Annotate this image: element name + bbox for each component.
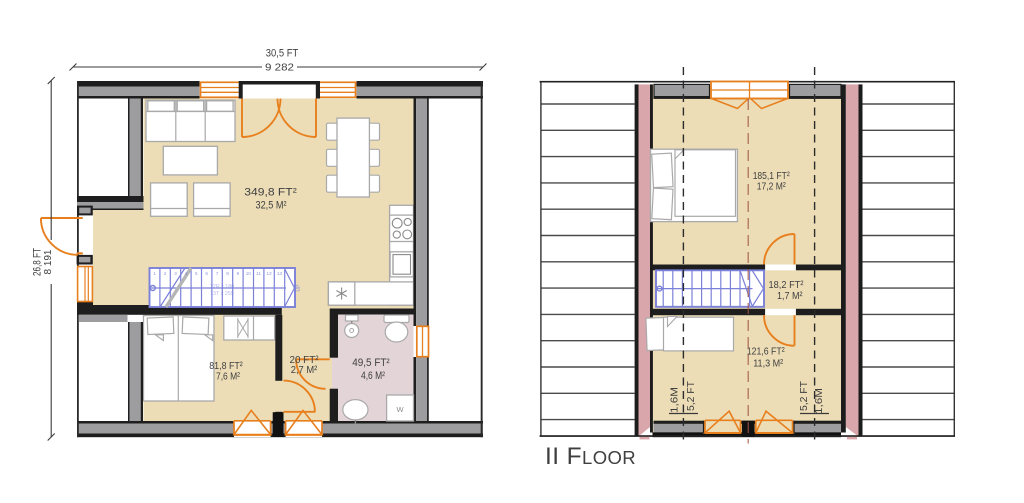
svg-text:32,5 M²: 32,5 M² bbox=[256, 200, 287, 212]
svg-text:26,8 FT: 26,8 FT bbox=[32, 248, 44, 276]
svg-text:13: 13 bbox=[277, 271, 283, 276]
svg-text:4: 4 bbox=[185, 271, 188, 276]
svg-text:5,2 FT: 5,2 FT bbox=[686, 381, 697, 411]
svg-text:11,3 M²: 11,3 M² bbox=[753, 359, 784, 370]
svg-text:UP: UP bbox=[296, 284, 302, 292]
svg-text:9 282: 9 282 bbox=[265, 63, 294, 74]
svg-text:10: 10 bbox=[246, 271, 252, 276]
svg-text:18,2 FT²: 18,2 FT² bbox=[769, 280, 805, 291]
svg-text:4,6 M²: 4,6 M² bbox=[361, 370, 385, 382]
svg-text:7: 7 bbox=[216, 271, 219, 276]
svg-text:17,2 M²: 17,2 M² bbox=[757, 182, 787, 193]
svg-text:12R x 180: 12R x 180 bbox=[210, 284, 235, 290]
svg-text:8 191: 8 191 bbox=[43, 249, 54, 274]
svg-text:2,7 M²: 2,7 M² bbox=[291, 365, 318, 376]
svg-text:12: 12 bbox=[267, 271, 273, 276]
svg-text:9: 9 bbox=[237, 271, 240, 276]
svg-text:1: 1 bbox=[153, 271, 156, 276]
svg-text:1,7 M²: 1,7 M² bbox=[777, 291, 803, 302]
svg-text:II FLOOR: II FLOOR bbox=[545, 443, 636, 470]
svg-text:2: 2 bbox=[164, 271, 167, 276]
svg-text:349,8 FT²: 349,8 FT² bbox=[244, 187, 297, 199]
svg-text:8: 8 bbox=[226, 271, 229, 276]
svg-text:30,5 FT: 30,5 FT bbox=[266, 48, 299, 60]
svg-text:1,6M: 1,6M bbox=[670, 387, 681, 413]
svg-text:5: 5 bbox=[195, 271, 198, 276]
svg-text:11: 11 bbox=[256, 271, 261, 276]
svg-text:49,5 FT²: 49,5 FT² bbox=[352, 357, 390, 369]
svg-text:13T x 255: 13T x 255 bbox=[210, 291, 234, 297]
svg-text:121,6 FT²: 121,6 FT² bbox=[747, 347, 786, 358]
svg-text:W: W bbox=[396, 405, 404, 414]
svg-text:1,6M: 1,6M bbox=[814, 388, 825, 414]
svg-text:81,8 FT²: 81,8 FT² bbox=[209, 361, 243, 372]
svg-text:5,2 FT: 5,2 FT bbox=[799, 381, 810, 411]
svg-text:3: 3 bbox=[174, 271, 177, 276]
svg-text:7,6 M²: 7,6 M² bbox=[216, 372, 241, 383]
svg-text:6: 6 bbox=[205, 271, 208, 276]
